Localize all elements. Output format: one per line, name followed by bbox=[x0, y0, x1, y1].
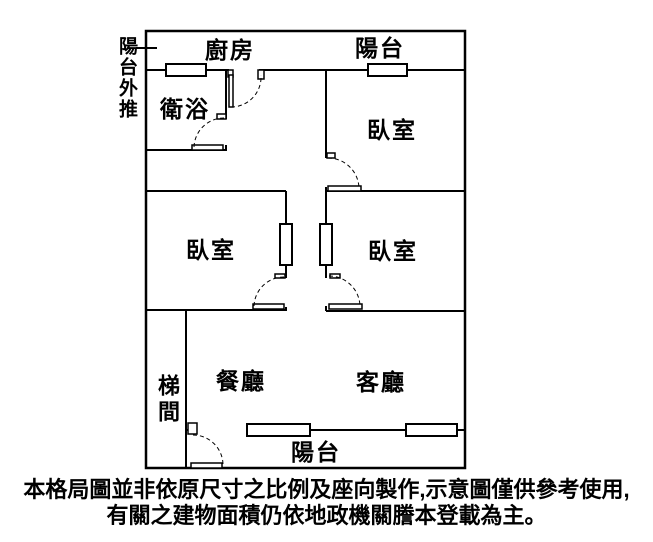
door-arc-balcony bbox=[193, 435, 223, 465]
room-label-bedroom-mid-left: 臥室 bbox=[186, 231, 236, 265]
door-leaf-balcony bbox=[191, 463, 222, 468]
door-leaf-bedroom-mid-right bbox=[329, 304, 362, 309]
door-leaf-bedroom-top-right bbox=[328, 186, 361, 191]
door-arcs bbox=[193, 75, 360, 465]
room-label-kitchen: 廚房 bbox=[205, 31, 255, 65]
room-label-balcony-bottom: 陽台 bbox=[291, 433, 341, 467]
room-label-bathroom: 衛浴 bbox=[160, 90, 210, 124]
door-arc-bedroom-top-right bbox=[328, 158, 359, 189]
jamb-bedroom-top-right-door bbox=[327, 153, 335, 158]
interior-walls bbox=[146, 70, 465, 468]
annotation-balcony-pushed-out: 陽台外推 bbox=[113, 36, 139, 120]
disclaimer-caption: 本格局圖並非依原尺寸之比例及座向製作,示意圖僅供參考使用, 有關之建物面積仍依地… bbox=[0, 477, 653, 529]
window-living-balcony bbox=[406, 424, 457, 436]
door-arc-kitchen bbox=[231, 75, 261, 107]
window-bedroom-left-corridor bbox=[280, 224, 292, 265]
window-bedroom-right-corridor bbox=[320, 224, 332, 265]
window-kitchen bbox=[166, 64, 206, 76]
door-arc-bedroom-mid-right bbox=[329, 276, 360, 307]
room-label-living: 客廳 bbox=[356, 363, 406, 397]
disclaimer-line-1: 本格局圖並非依原尺寸之比例及座向製作,示意圖僅供參考使用, bbox=[0, 477, 653, 503]
jamb-balcony-door bbox=[188, 423, 197, 434]
room-label-bedroom-top-right: 臥室 bbox=[367, 111, 417, 145]
room-label-stairwell: 梯間 bbox=[151, 374, 183, 426]
room-label-dining: 餐廳 bbox=[216, 362, 266, 396]
room-label-bedroom-mid-right: 臥室 bbox=[368, 232, 418, 266]
door-leaf-bedroom-mid-left bbox=[253, 304, 284, 309]
window-balcony-top bbox=[368, 64, 407, 76]
jamb-kitchen-door-right bbox=[258, 70, 264, 79]
door-leaf-bathroom bbox=[192, 145, 223, 150]
floorplan-canvas: 廚房 陽台 衛浴 臥室 臥室 臥室 餐廳 客廳 梯間 陽台 陽台外推 本格局圖並… bbox=[0, 0, 653, 542]
door-leaves bbox=[191, 75, 362, 468]
room-label-balcony-top: 陽台 bbox=[355, 29, 405, 63]
door-leaf-kitchen bbox=[229, 75, 233, 107]
door-arc-bedroom-mid-left bbox=[254, 277, 284, 307]
disclaimer-line-2: 有關之建物面積仍依地政機關謄本登載為主。 bbox=[0, 503, 653, 529]
